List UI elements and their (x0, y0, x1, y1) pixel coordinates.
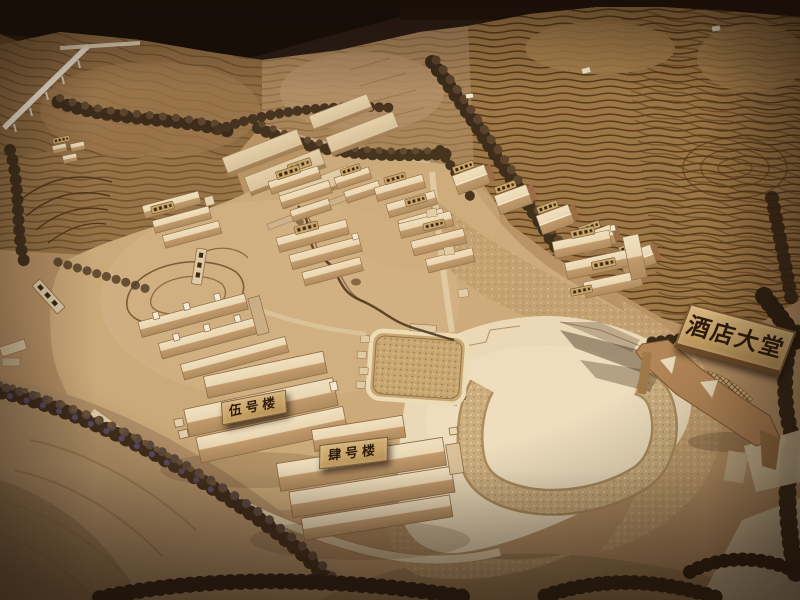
architectural-model-photo: 酒店大堂 伍号楼 肆号楼 (0, 0, 800, 600)
model-terrain-artwork (0, 0, 800, 600)
building-5-sign-text: 伍号楼 (229, 396, 280, 419)
building-4-sign-text: 肆号楼 (328, 443, 379, 462)
